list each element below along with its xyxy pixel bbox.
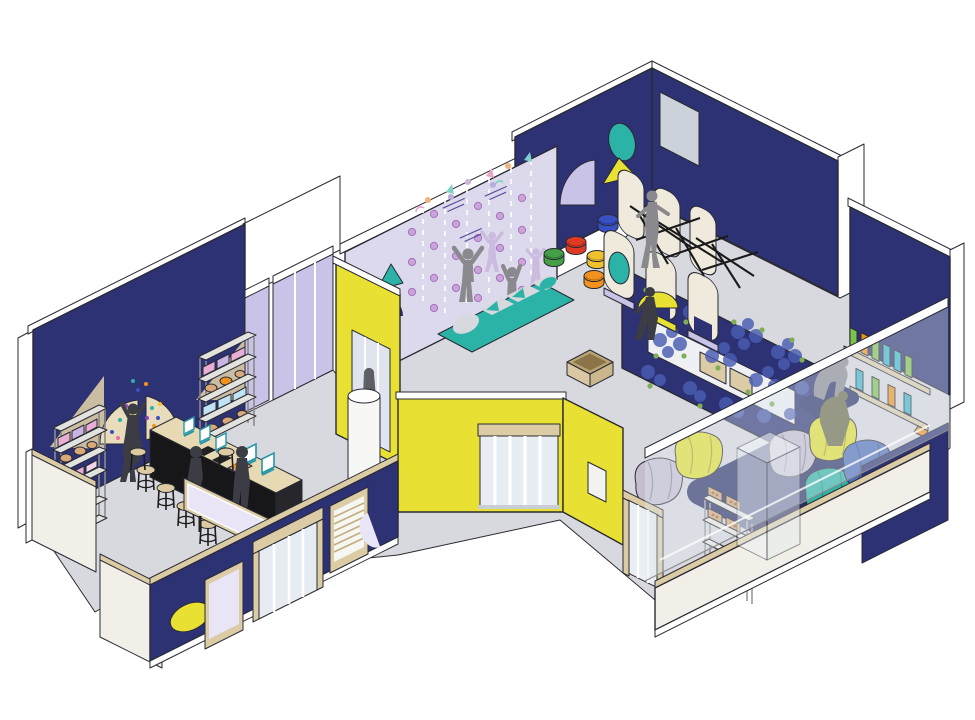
- stool-blue: [598, 215, 618, 233]
- stool-orange: [584, 271, 604, 289]
- scene-canvas: [0, 0, 975, 720]
- stool-red: [566, 237, 586, 255]
- main-glass-door: [478, 424, 560, 509]
- stool-green: [544, 249, 564, 267]
- isometric-interior-illustration: [0, 0, 975, 720]
